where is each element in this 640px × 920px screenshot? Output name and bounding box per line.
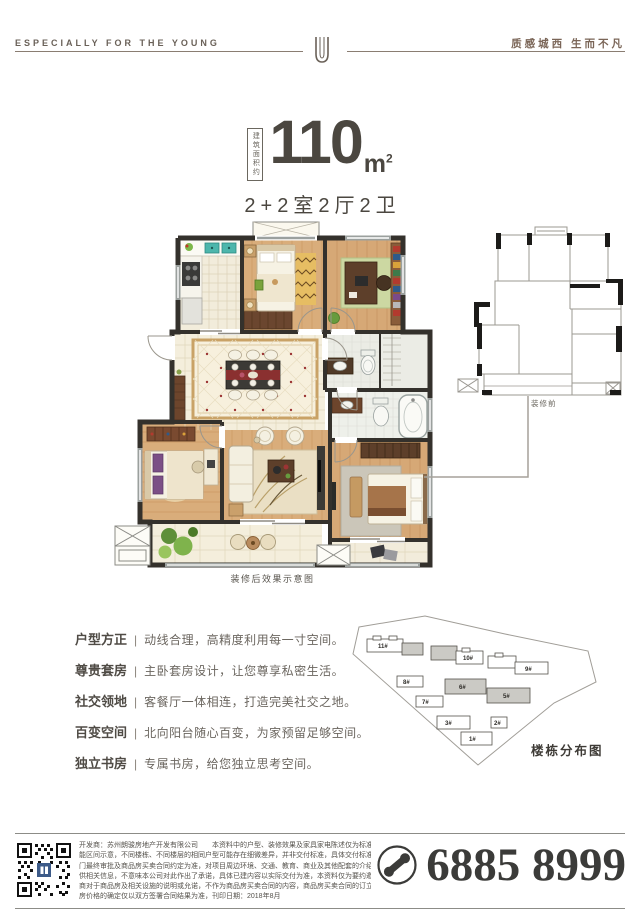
footer-rule-top: [15, 833, 625, 834]
feature-label: 百变空间: [75, 725, 127, 740]
headline-block: 建筑面积约 110 m2 2+2室2厅2卫: [0, 116, 640, 218]
features-list: 户型方正|动线合理，高精度利用每一寸空间。 尊贵套房|主卧套房设计，让您尊享私密…: [75, 624, 369, 779]
footer-rule-bottom: [15, 908, 625, 909]
feature-separator: |: [134, 726, 137, 740]
feature-separator: |: [134, 695, 137, 709]
feature-separator: |: [134, 664, 137, 678]
phone-receiver-icon: [375, 843, 419, 887]
disclaimer-line: 开发商：苏州朗骏房地产开发有限公司 本资料中的户型、装修效果及家具家电陈述仅为标…: [79, 841, 371, 851]
building-label: 11#: [378, 644, 388, 650]
area-unit: m2: [364, 150, 393, 179]
feature-desc: 主卧套房设计，让您尊享私密生活。: [144, 664, 344, 678]
building-label: 1#: [469, 737, 476, 743]
disclaimer-line: 门最终审批及商品房买卖合同约定为准，对项目周边环境、交通、教育、商业及其他配套的…: [79, 862, 371, 872]
feature-label: 户型方正: [75, 632, 127, 647]
feature-label: 独立书房: [75, 756, 127, 771]
building-label: 10#: [463, 656, 474, 662]
before-connector-line: [420, 392, 540, 484]
disclaimer-line: 房价格的确定仅以双方签署合同结果为准，刊印日期：2018年8月: [79, 892, 371, 902]
feature-separator: |: [134, 757, 137, 771]
qr-code-icon: [15, 841, 73, 899]
poster-page: ESPECIALLY FOR THE YOUNG 质感城西 生而不凡 建筑面积约…: [0, 0, 640, 920]
area-value: 110: [269, 116, 361, 168]
header-left-tagline: ESPECIALLY FOR THE YOUNG: [15, 38, 220, 48]
building-label: 5#: [503, 694, 510, 700]
feature-row: 独立书房|专属书房，给您独立思考空间。: [75, 748, 369, 779]
building-label: 7#: [422, 700, 429, 706]
floorplan-caption: 装修后效果示意图: [105, 572, 440, 585]
siteplan-title: 楼栋分布图: [531, 740, 604, 759]
building-label: 2#: [494, 721, 501, 727]
building-label: 9#: [525, 667, 532, 673]
disclaimer-line: 供相关信息，不意味本公司对此作出了承诺，具体已建内容以实际交付为准，本资料仅为要…: [79, 872, 371, 882]
header-rule-left: [15, 51, 303, 52]
building-label: 8#: [403, 680, 410, 686]
feature-label: 社交领地: [75, 694, 127, 709]
area-label-text: 建筑面积约: [250, 132, 260, 177]
feature-separator: |: [134, 633, 137, 647]
layout-spec: 2+2室2厅2卫: [0, 189, 640, 218]
feature-desc: 专属书房，给您独立思考空间。: [144, 757, 319, 771]
feature-row: 户型方正|动线合理，高精度利用每一寸空间。: [75, 624, 369, 655]
before-plan-label: 装修前: [531, 398, 557, 409]
feature-label: 尊贵套房: [75, 663, 127, 678]
feature-desc: 动线合理，高精度利用每一寸空间。: [144, 633, 344, 647]
disclaimer-text: 开发商：苏州朗骏房地产开发有限公司 本资料中的户型、装修效果及家具家电陈述仅为标…: [79, 841, 371, 903]
header-rule-right: [347, 51, 625, 52]
brand-logo-icon: [312, 36, 332, 66]
building-label: 6#: [459, 685, 466, 691]
feature-desc: 客餐厅一体相连，打造完美社交之地。: [144, 695, 357, 709]
feature-row: 社交领地|客餐厅一体相连，打造完美社交之地。: [75, 686, 369, 717]
phone-number: 6885 8999: [426, 838, 626, 892]
header-right-tagline: 质感城西 生而不凡: [511, 36, 625, 51]
feature-desc: 北向阳台随心百变，为家预留足够空间。: [144, 726, 369, 740]
floorplan-after: [105, 220, 440, 570]
building-label: 3#: [445, 721, 452, 727]
feature-row: 尊贵套房|主卧套房设计，让您尊享私密生活。: [75, 655, 369, 686]
disclaimer-line: 能区间示意，不同楼栋、不同楼层的相同户型可能存在细微差异，并非交付标准，具体交付…: [79, 851, 371, 861]
feature-row: 百变空间|北向阳台随心百变，为家预留足够空间。: [75, 717, 369, 748]
phone-block: 6885 8999: [375, 838, 626, 892]
area-label-box: 建筑面积约: [247, 128, 263, 181]
floorplan-before: [450, 226, 635, 398]
disclaimer-line: 商对于商品房及相关设施的说明或允诺，不作为商品房买卖合同的内容，商品房买卖合同的…: [79, 882, 371, 892]
